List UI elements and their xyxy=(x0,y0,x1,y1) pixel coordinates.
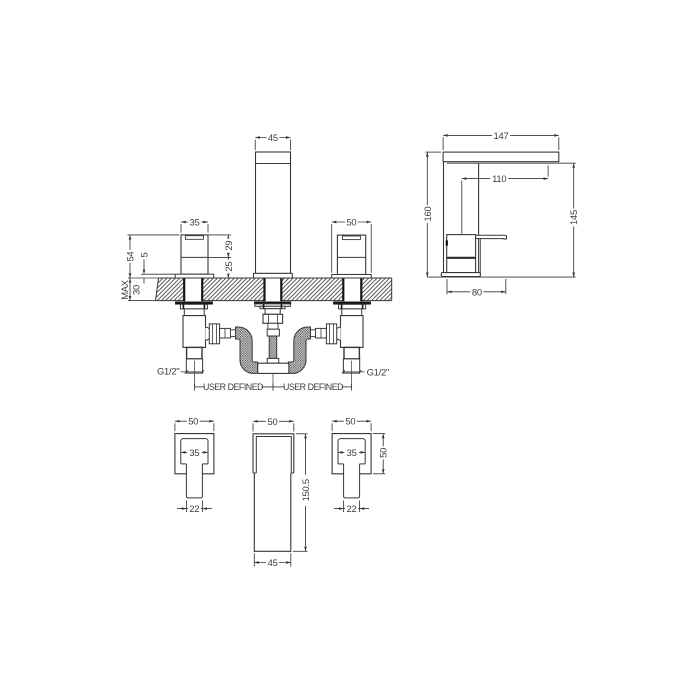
svg-text:35: 35 xyxy=(189,447,199,458)
svg-text:30: 30 xyxy=(130,285,141,295)
svg-text:5: 5 xyxy=(139,252,150,257)
svg-text:147: 147 xyxy=(494,130,509,141)
svg-text:USER DEFINED: USER DEFINED xyxy=(203,382,263,392)
svg-text:50: 50 xyxy=(378,448,389,458)
svg-text:50: 50 xyxy=(346,217,356,228)
svg-text:22: 22 xyxy=(189,503,199,514)
svg-text:45: 45 xyxy=(268,557,278,568)
svg-text:35: 35 xyxy=(347,447,357,458)
svg-text:G1/2": G1/2" xyxy=(367,366,389,377)
svg-text:22: 22 xyxy=(347,503,357,514)
svg-text:G1/2": G1/2" xyxy=(157,366,179,377)
svg-text:45: 45 xyxy=(268,132,278,143)
svg-text:29: 29 xyxy=(223,241,234,251)
svg-text:50: 50 xyxy=(345,416,355,427)
svg-text:USER DEFINED: USER DEFINED xyxy=(283,382,343,392)
svg-text:25: 25 xyxy=(223,262,234,272)
svg-text:MAX: MAX xyxy=(119,279,130,300)
svg-text:145: 145 xyxy=(568,210,579,225)
svg-text:110: 110 xyxy=(492,173,506,184)
svg-text:150.5: 150.5 xyxy=(300,479,311,501)
svg-text:54: 54 xyxy=(125,252,136,262)
svg-text:80: 80 xyxy=(472,286,482,297)
svg-text:50: 50 xyxy=(268,416,278,427)
svg-text:50: 50 xyxy=(188,416,198,427)
svg-text:35: 35 xyxy=(190,217,200,228)
svg-text:160: 160 xyxy=(422,207,433,222)
